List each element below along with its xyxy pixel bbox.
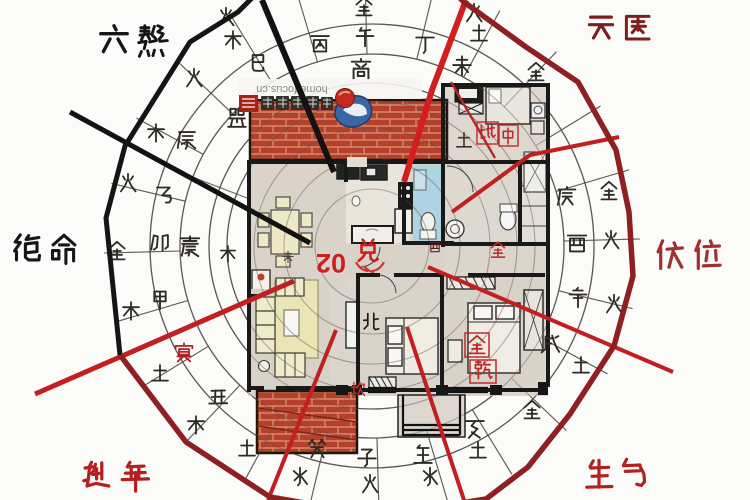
svg-text:02: 02 [316, 248, 346, 278]
svg-text:home.focus.cn: home.focus.cn [256, 83, 328, 95]
